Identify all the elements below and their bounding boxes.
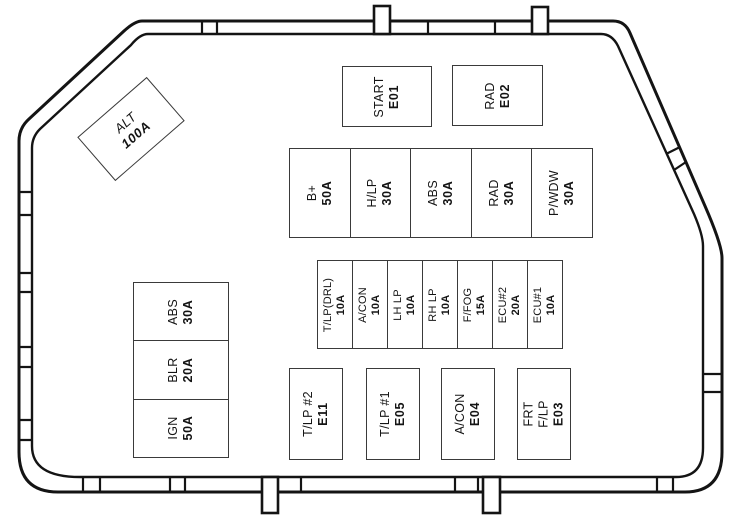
fuse-value: 30A xyxy=(181,299,196,325)
fuse-ecu2: ECU#2 20A xyxy=(493,261,528,348)
relay-frt-flp: FRT F/LP E03 xyxy=(517,368,571,460)
fuse-acon-mini: A/CON 10A xyxy=(353,261,388,348)
relay-label: START xyxy=(372,76,387,117)
fuse-label: LH LP xyxy=(392,289,405,321)
fuse-label: BLR xyxy=(166,357,181,382)
relay-tlp1: T/LP #1 E05 xyxy=(366,368,420,460)
fuse-value: 30A xyxy=(502,179,517,206)
fuse-rad-main: RAD 30A xyxy=(472,149,533,237)
fuse-pwdw: P/WDW 30A xyxy=(532,149,592,237)
fuse-label: RH LP xyxy=(427,288,440,321)
fuse-label: ECU#1 xyxy=(532,286,545,322)
side-fuse-column: ABS 30A BLR 20A IGN 50A xyxy=(133,282,229,458)
relay-value: E02 xyxy=(498,82,513,109)
relay-label: T/LP #2 xyxy=(301,391,316,437)
relay-label: T/LP #1 xyxy=(378,391,393,437)
fuse-bplus: B+ 50A xyxy=(290,149,351,237)
fuse-label: A/CON xyxy=(357,287,370,323)
relay-label: F/LP xyxy=(537,400,552,428)
relay-value: E11 xyxy=(316,391,331,437)
fuse-box-diagram: ALT 100A START E01 RAD E02 B+ 50A H/LP 3… xyxy=(0,0,739,524)
fuse-value: 20A xyxy=(181,357,196,382)
relay-acon: A/CON E04 xyxy=(441,368,495,460)
fuse-rh-lp: RH LP 10A xyxy=(423,261,458,348)
main-fuse-row: B+ 50A H/LP 30A ABS 30A RAD 30A P/WDW xyxy=(289,148,593,238)
fuse-abs-side: ABS 30A xyxy=(134,283,228,341)
relay-rad: RAD E02 xyxy=(452,65,543,126)
fuse-tlp-drl: T/LP(DRL) 10A xyxy=(318,261,353,348)
fuse-ecu1: ECU#1 10A xyxy=(528,261,562,348)
fuse-ign: IGN 50A xyxy=(134,400,228,457)
fuse-value: 10A xyxy=(370,287,383,323)
fuse-blr: BLR 20A xyxy=(134,341,228,399)
relay-value: E05 xyxy=(393,391,408,437)
fuse-value: 50A xyxy=(320,180,335,205)
mini-fuse-row: T/LP(DRL) 10A A/CON 10A LH LP 10A RH LP … xyxy=(317,260,563,349)
fuse-label: ABS xyxy=(426,180,441,206)
fuse-label: ECU#2 xyxy=(497,286,510,322)
relay-start: START E01 xyxy=(342,66,432,127)
fuse-value: 30A xyxy=(562,170,577,216)
fuse-value: 50A xyxy=(181,416,196,441)
fuse-label: RAD xyxy=(487,179,502,206)
relay-tlp2: T/LP #2 E11 xyxy=(289,368,343,460)
relay-value: E01 xyxy=(387,76,402,117)
mounting-tab-top-left xyxy=(374,6,390,34)
fuse-label: P/WDW xyxy=(547,170,562,216)
relay-label: A/CON xyxy=(453,393,468,434)
fuse-lh-lp: LH LP 10A xyxy=(388,261,423,348)
relay-label: FRT xyxy=(522,400,537,428)
fuse-value: 20A xyxy=(510,286,523,322)
fuse-ffog: F/FOG 15A xyxy=(458,261,493,348)
fuse-value: 15A xyxy=(475,287,488,322)
fuse-value: 10A xyxy=(335,277,348,331)
mounting-tab-bottom-left xyxy=(262,477,278,513)
mounting-tab-top-right xyxy=(532,7,548,34)
fuse-abs-main: ABS 30A xyxy=(411,149,472,237)
relay-value: E03 xyxy=(552,400,567,428)
fuse-label: ABS xyxy=(166,299,181,325)
fuse-label: B+ xyxy=(305,180,320,205)
fuse-label: IGN xyxy=(166,416,181,441)
fuse-value: 10A xyxy=(545,286,558,322)
fuse-label: T/LP(DRL) xyxy=(322,277,335,331)
fuse-value: 10A xyxy=(440,288,453,321)
fuse-hlp: H/LP 30A xyxy=(351,149,412,237)
relay-label: RAD xyxy=(483,82,498,109)
fuse-label: F/FOG xyxy=(462,287,475,322)
fuse-value: 30A xyxy=(380,179,395,208)
fuse-value: 30A xyxy=(441,180,456,206)
fuse-value: 10A xyxy=(405,289,418,321)
relay-value: E04 xyxy=(468,393,483,434)
mounting-tab-bottom-right xyxy=(483,477,500,513)
fuse-label: H/LP xyxy=(365,179,380,208)
